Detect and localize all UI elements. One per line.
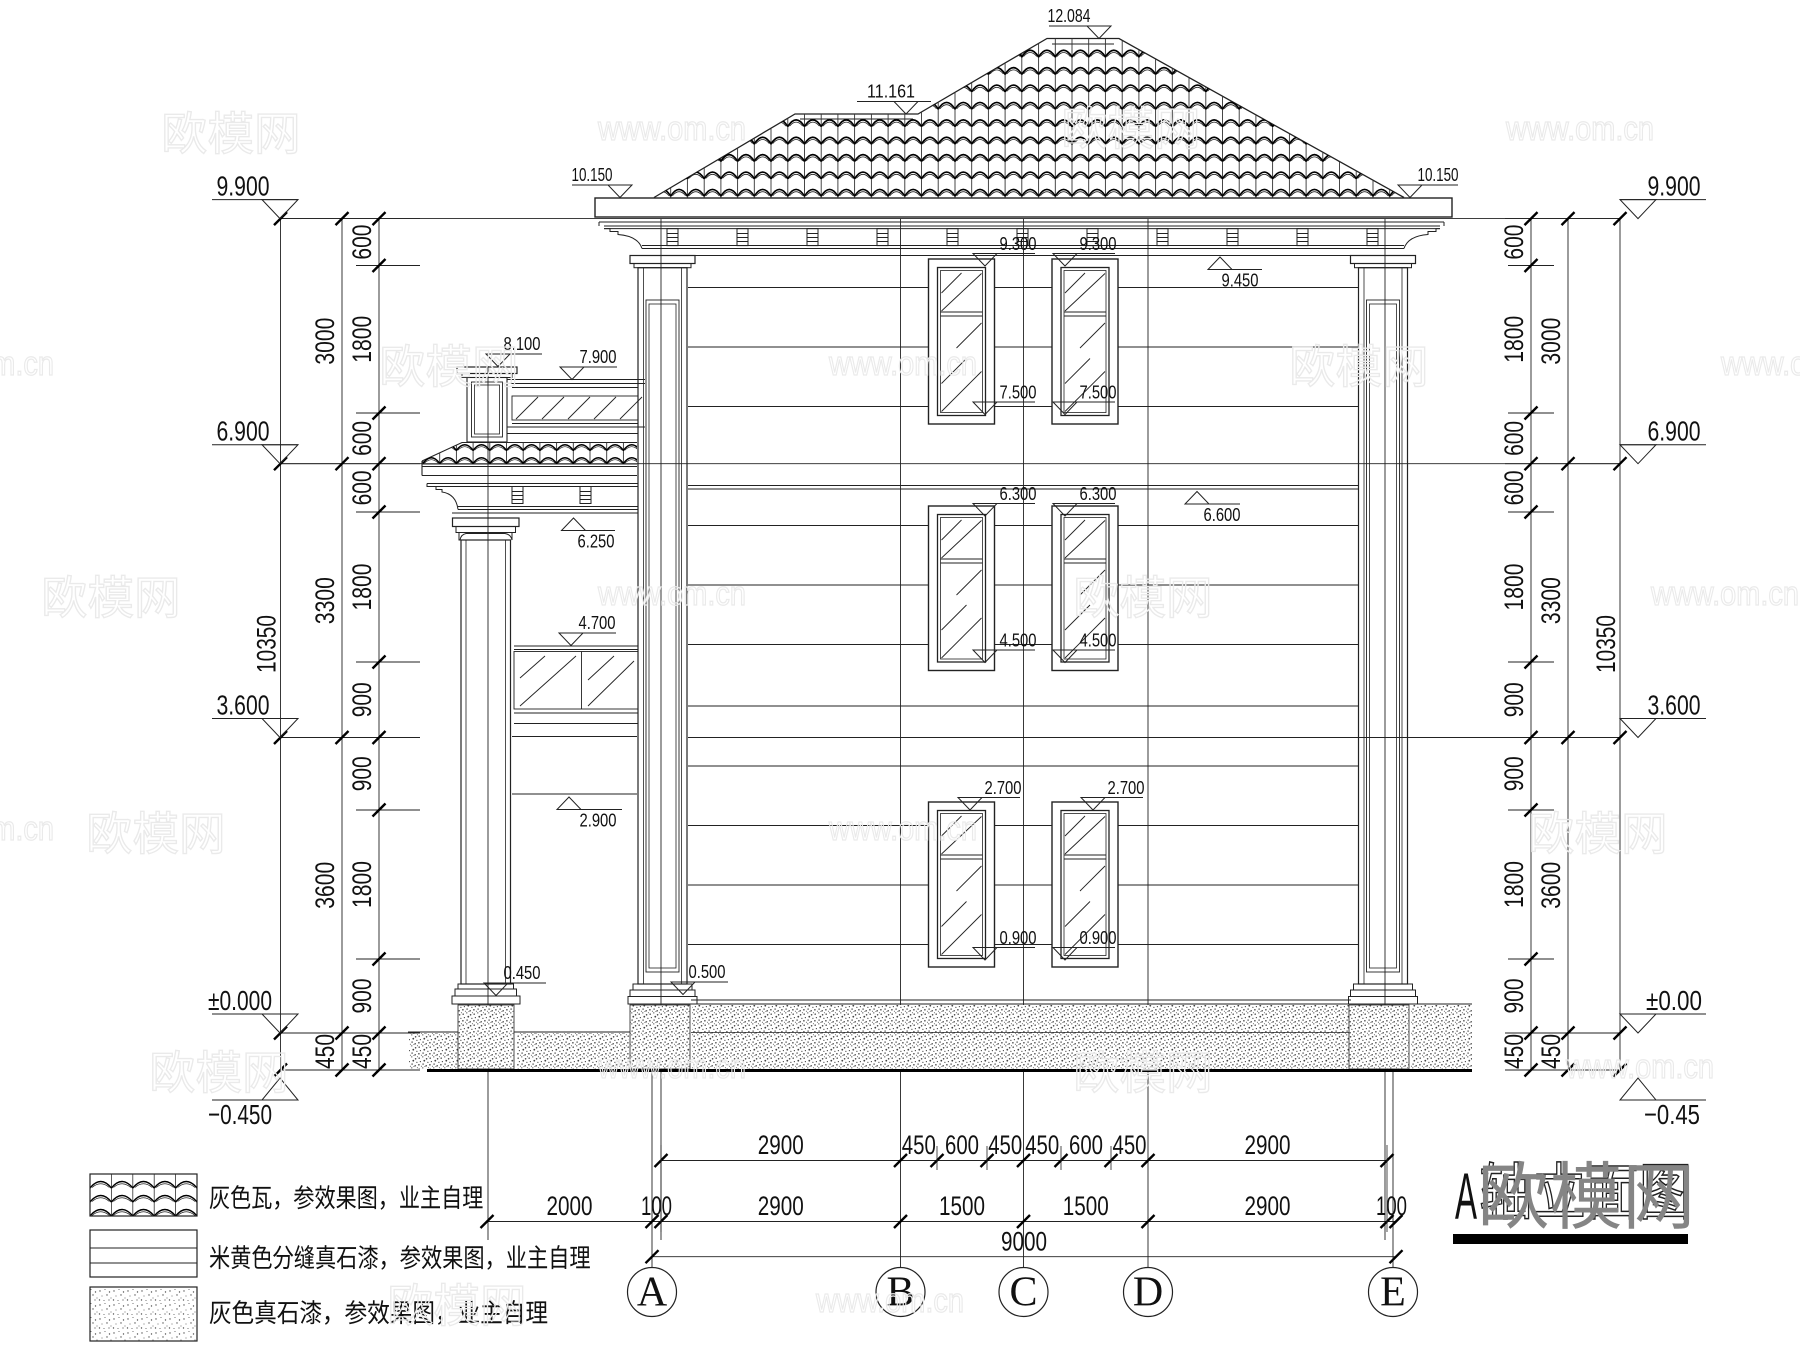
svg-text:6.300: 6.300 [1000, 483, 1037, 504]
svg-text:1800: 1800 [1499, 564, 1529, 611]
svg-text:2900: 2900 [1245, 1130, 1291, 1160]
svg-text:A: A [1455, 1159, 1477, 1233]
svg-text:3000: 3000 [310, 318, 340, 365]
svg-text:4.500: 4.500 [1000, 630, 1037, 651]
svg-text:100: 100 [641, 1191, 672, 1221]
svg-text:0.900: 0.900 [1000, 927, 1037, 948]
svg-text:C: C [1009, 1270, 1037, 1316]
svg-text:6.300: 6.300 [1080, 483, 1117, 504]
svg-text:450: 450 [1536, 1034, 1566, 1069]
svg-text:900: 900 [347, 979, 377, 1014]
svg-text:E: E [1380, 1270, 1406, 1316]
svg-text:2.700: 2.700 [985, 777, 1022, 798]
svg-text:9.900: 9.900 [217, 171, 270, 202]
svg-text:www.om.cn: www.om.cn [597, 110, 746, 148]
svg-text:600: 600 [1499, 225, 1529, 260]
svg-text:10350: 10350 [252, 615, 282, 673]
svg-text:7.500: 7.500 [1080, 382, 1117, 403]
svg-text:www.om.cn: www.om.cn [1505, 110, 1654, 148]
svg-text:600: 600 [945, 1130, 979, 1160]
svg-text:www.om.cn: www.om.cn [828, 810, 977, 848]
svg-text:1800: 1800 [347, 564, 377, 611]
svg-text:2.900: 2.900 [580, 810, 617, 831]
svg-text:450: 450 [1025, 1130, 1059, 1160]
svg-text:6.900: 6.900 [217, 416, 270, 447]
svg-text:1800: 1800 [1499, 316, 1529, 363]
svg-text:3600: 3600 [1536, 862, 1566, 909]
svg-text:450: 450 [1113, 1130, 1147, 1160]
svg-text:2.700: 2.700 [1108, 777, 1145, 798]
svg-text:9.300: 9.300 [1080, 233, 1117, 254]
svg-text:600: 600 [1499, 421, 1529, 456]
svg-text:4.700: 4.700 [579, 612, 616, 633]
svg-text:4.500: 4.500 [1080, 630, 1117, 651]
svg-text:D: D [1133, 1270, 1163, 1316]
svg-text:−0.45: −0.45 [1644, 1099, 1700, 1130]
svg-text:1800: 1800 [347, 316, 377, 363]
svg-text:1800: 1800 [1499, 861, 1529, 908]
svg-text:9.450: 9.450 [1222, 270, 1259, 291]
svg-text:900: 900 [1499, 682, 1529, 717]
svg-text:1500: 1500 [939, 1191, 985, 1221]
svg-text:9000: 9000 [1001, 1227, 1047, 1257]
svg-text:2900: 2900 [758, 1130, 804, 1160]
svg-text:11.161: 11.161 [867, 81, 915, 102]
svg-text:450: 450 [902, 1130, 936, 1160]
svg-text:2900: 2900 [1245, 1191, 1291, 1221]
svg-text:3600: 3600 [310, 862, 340, 909]
svg-text:A: A [637, 1270, 668, 1316]
svg-text:600: 600 [347, 225, 377, 260]
svg-text:±0.000: ±0.000 [208, 985, 272, 1016]
svg-text:www.om.cn: www.om.cn [0, 810, 54, 848]
svg-text:7.900: 7.900 [580, 346, 617, 367]
svg-text:www.om.cn: www.om.cn [1650, 575, 1799, 613]
svg-text:3000: 3000 [1536, 318, 1566, 365]
svg-text:900: 900 [347, 756, 377, 791]
svg-text:0.500: 0.500 [689, 961, 726, 982]
svg-text:7.500: 7.500 [1000, 382, 1037, 403]
svg-text:450: 450 [347, 1034, 377, 1069]
svg-text:6.900: 6.900 [1648, 416, 1701, 447]
svg-text:www.om.cn: www.om.cn [1565, 1048, 1714, 1086]
svg-text:450: 450 [1499, 1034, 1529, 1069]
svg-text:450: 450 [310, 1034, 340, 1069]
svg-text:600: 600 [347, 470, 377, 505]
svg-text:600: 600 [347, 421, 377, 456]
svg-text:1500: 1500 [1063, 1191, 1109, 1221]
svg-text:100: 100 [1376, 1191, 1407, 1221]
svg-text:www.om.cn: www.om.cn [597, 575, 746, 613]
svg-text:900: 900 [1499, 979, 1529, 1014]
svg-text:1800: 1800 [347, 861, 377, 908]
svg-text:10.150: 10.150 [572, 164, 613, 185]
svg-text:12.084: 12.084 [1048, 5, 1091, 26]
svg-text:www.om.cn: www.om.cn [597, 1048, 746, 1086]
svg-text:3.600: 3.600 [1648, 690, 1701, 721]
svg-text:900: 900 [347, 682, 377, 717]
svg-text:0.450: 0.450 [504, 962, 541, 983]
svg-text:6.600: 6.600 [1204, 504, 1241, 525]
svg-text:9.300: 9.300 [1000, 233, 1037, 254]
svg-text:2900: 2900 [758, 1191, 804, 1221]
svg-text:6.250: 6.250 [578, 531, 615, 552]
svg-text:900: 900 [1499, 756, 1529, 791]
svg-text:www.om.cn: www.om.cn [815, 1282, 964, 1320]
svg-text:3300: 3300 [1536, 577, 1566, 624]
svg-text:10.150: 10.150 [1418, 164, 1459, 185]
svg-text:2000: 2000 [547, 1191, 593, 1221]
svg-text:−0.450: −0.450 [208, 1099, 272, 1130]
svg-text:0.900: 0.900 [1080, 927, 1117, 948]
svg-text:450: 450 [988, 1130, 1022, 1160]
svg-text:3.600: 3.600 [217, 690, 270, 721]
svg-text:600: 600 [1069, 1130, 1103, 1160]
svg-text:600: 600 [1499, 470, 1529, 505]
svg-text:10350: 10350 [1591, 615, 1621, 673]
svg-text:www.om.cn: www.om.cn [1720, 345, 1800, 383]
svg-text:3300: 3300 [310, 577, 340, 624]
svg-text:9.900: 9.900 [1648, 171, 1701, 202]
svg-text:www.om.cn: www.om.cn [0, 345, 54, 383]
svg-text:www.om.cn: www.om.cn [828, 345, 977, 383]
svg-text:±0.00: ±0.00 [1646, 985, 1702, 1016]
